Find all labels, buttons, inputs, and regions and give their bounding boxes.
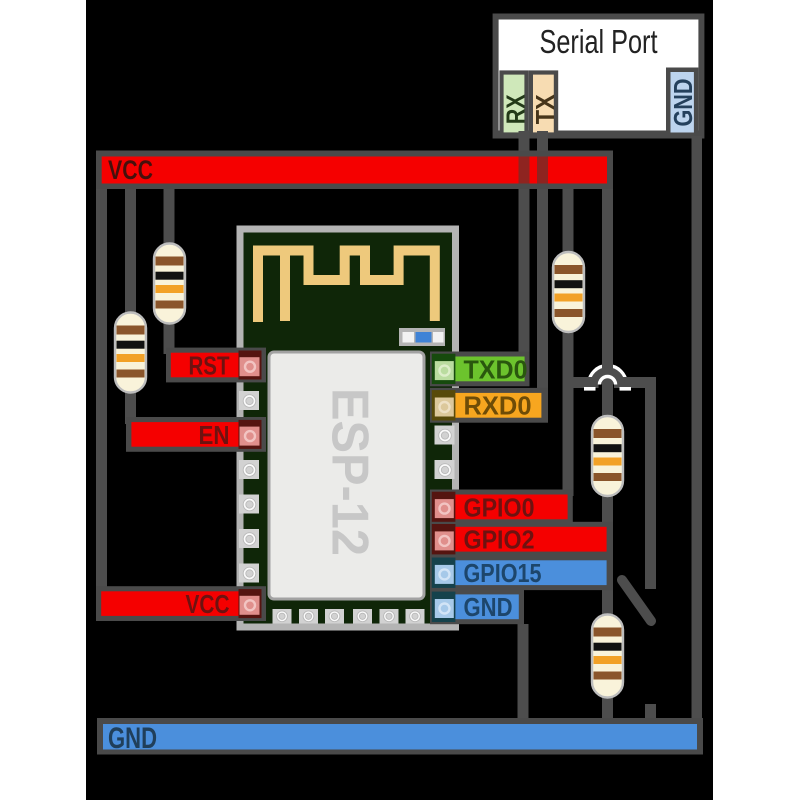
svg-text:RXD0: RXD0 bbox=[464, 391, 532, 421]
svg-text:RST: RST bbox=[189, 350, 230, 380]
svg-text:GND: GND bbox=[668, 79, 698, 127]
svg-text:EN: EN bbox=[199, 420, 230, 450]
svg-text:GPIO2: GPIO2 bbox=[464, 525, 535, 555]
svg-text:TXD0: TXD0 bbox=[464, 354, 528, 384]
svg-text:GPIO0: GPIO0 bbox=[464, 492, 535, 522]
svg-text:Serial Port: Serial Port bbox=[540, 23, 658, 60]
svg-text:VCC: VCC bbox=[186, 589, 230, 619]
svg-text:GND: GND bbox=[108, 722, 157, 755]
svg-text:GPIO15: GPIO15 bbox=[464, 558, 542, 588]
svg-text:RX: RX bbox=[500, 94, 530, 125]
svg-text:TX: TX bbox=[530, 94, 560, 125]
svg-text:ESP-12: ESP-12 bbox=[321, 388, 379, 556]
svg-text:GND: GND bbox=[464, 592, 513, 622]
svg-text:VCC: VCC bbox=[108, 155, 153, 185]
